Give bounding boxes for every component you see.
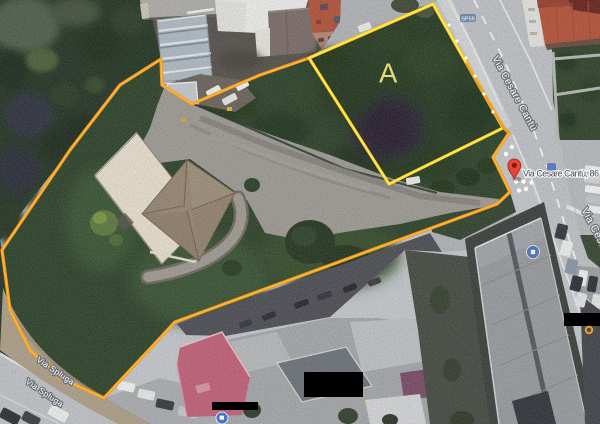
svg-text:A: A bbox=[379, 58, 398, 89]
svg-text:SP59: SP59 bbox=[461, 17, 474, 23]
svg-text:Via Cesare Cantù, 86: Via Cesare Cantù, 86 bbox=[523, 169, 599, 179]
